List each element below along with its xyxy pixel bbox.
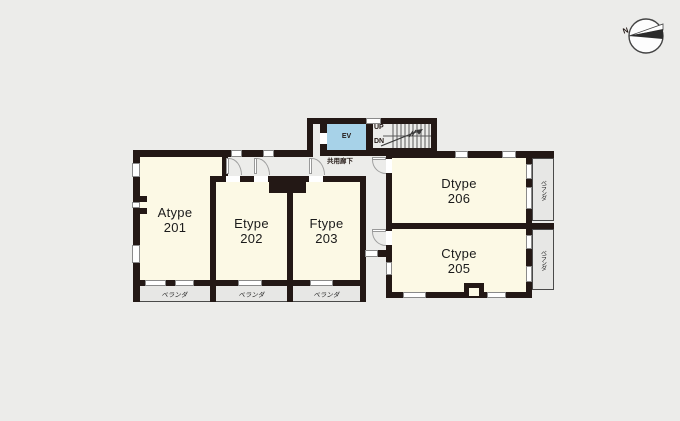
- room-206-number: 206: [448, 191, 471, 206]
- window: [366, 118, 381, 124]
- stairs-down-label: DN: [374, 137, 392, 147]
- balcony-201-label: ベランダ: [161, 289, 189, 299]
- balcony-203: ベランダ: [292, 285, 361, 302]
- window: [526, 266, 532, 282]
- balcony-201: ベランダ: [139, 285, 211, 302]
- window: [403, 292, 426, 298]
- window: [526, 235, 532, 249]
- balcony-202-label: ベランダ: [237, 289, 265, 299]
- door-arc-202: [257, 158, 270, 175]
- room-205-type: Ctype: [441, 246, 476, 261]
- window: [502, 151, 516, 158]
- left-block-right-wall: [360, 176, 366, 302]
- window: [365, 250, 378, 257]
- window: [263, 150, 274, 157]
- room-203-number: 203: [315, 231, 338, 246]
- floor-plan-canvas: ベランダ ベランダ ベランダ ベランダ ベランダ EV: [0, 0, 680, 421]
- room-205-number: 205: [448, 261, 471, 276]
- window: [175, 280, 194, 286]
- balcony-206-label: ベランダ: [539, 180, 548, 200]
- room-202-label: Etype 202: [216, 182, 287, 280]
- window: [132, 163, 140, 177]
- balcony-202: ベランダ: [215, 285, 288, 302]
- room-206-type: Dtype: [441, 176, 476, 191]
- door-arc-205: [372, 232, 386, 246]
- room-206-label: Dtype 206: [392, 158, 526, 223]
- window: [487, 292, 506, 298]
- room-201-label: Atype 201: [140, 170, 210, 270]
- door-arc-201: [229, 158, 242, 175]
- balcony-205: ベランダ: [532, 229, 554, 290]
- stair-block-left-wall: [307, 118, 313, 157]
- balcony-205-label: ベランダ: [539, 250, 548, 270]
- room-202-type: Etype: [234, 216, 269, 231]
- room-201-number: 201: [164, 220, 187, 235]
- balcony-206: ベランダ: [532, 158, 554, 221]
- room-203-type: Ftype: [309, 216, 343, 231]
- elevator-cab: EV: [327, 124, 366, 150]
- window: [310, 280, 333, 286]
- window: [526, 187, 532, 209]
- door-arc-206: [372, 160, 386, 174]
- window: [238, 280, 262, 286]
- room-202-number: 202: [240, 231, 263, 246]
- left-wall-notch-window: [132, 202, 140, 208]
- room-203-label: Ftype 203: [293, 182, 360, 280]
- window: [132, 245, 140, 263]
- corridor-label: 共用廊下: [314, 157, 366, 167]
- elevator-door-gap: [320, 133, 327, 144]
- compass-icon: [620, 12, 672, 64]
- window: [526, 164, 532, 179]
- room-201-type: Atype: [158, 205, 193, 220]
- elevator-right-wall: [366, 124, 373, 156]
- stairs-up-label: UP: [374, 123, 392, 133]
- balcony-203-label: ベランダ: [312, 289, 340, 299]
- room-205-label: Ctype 205: [392, 229, 526, 292]
- elevator-label: EV: [342, 132, 351, 142]
- window: [231, 150, 242, 157]
- window: [455, 151, 468, 158]
- window: [145, 280, 166, 286]
